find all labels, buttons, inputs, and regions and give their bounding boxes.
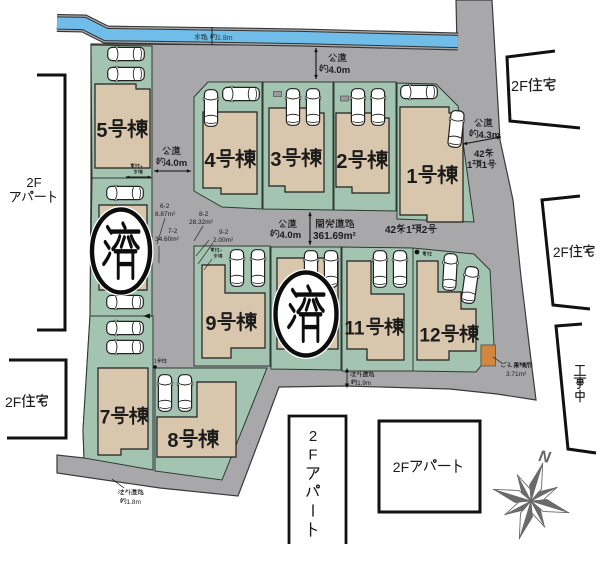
svg-text:4.0m: 4.0m — [280, 230, 302, 241]
svg-text:4.0m: 4.0m — [329, 65, 351, 76]
svg-text:5: 5 — [96, 120, 107, 142]
svg-text:1: 1 — [482, 160, 488, 171]
svg-text:2: 2 — [422, 225, 428, 236]
svg-text:1.8m: 1.8m — [127, 499, 141, 506]
svg-text:2F: 2F — [511, 79, 528, 95]
svg-text:6-2: 6-2 — [160, 203, 170, 210]
svg-text:1.8m: 1.8m — [217, 35, 233, 42]
svg-text:42: 42 — [385, 225, 397, 236]
svg-text:2: 2 — [336, 151, 347, 173]
svg-text:2.00m²: 2.00m² — [213, 237, 234, 244]
svg-text:2F: 2F — [5, 394, 21, 410]
svg-text:1.9m: 1.9m — [357, 380, 371, 387]
svg-text:4.0m: 4.0m — [166, 158, 188, 169]
svg-text:361.69m²: 361.69m² — [313, 231, 356, 242]
svg-text:1: 1 — [154, 359, 157, 365]
svg-text:1: 1 — [467, 160, 473, 171]
svg-text:9: 9 — [205, 313, 216, 335]
svg-text:3: 3 — [270, 149, 281, 171]
svg-text:+: + — [220, 249, 223, 254]
svg-text:28.32m²: 28.32m² — [189, 219, 214, 226]
svg-text:4: 4 — [204, 150, 216, 172]
svg-text:3.71m²: 3.71m² — [506, 371, 527, 378]
svg-text:34.60m²: 34.60m² — [155, 236, 180, 243]
svg-text:12: 12 — [419, 326, 440, 347]
svg-text:+: + — [140, 164, 143, 170]
svg-text:2F: 2F — [553, 245, 569, 260]
svg-text:9-2: 9-2 — [219, 229, 229, 236]
svg-text:42: 42 — [474, 149, 485, 160]
svg-text:1: 1 — [406, 166, 417, 188]
svg-text:2F: 2F — [26, 175, 41, 190]
svg-text:8: 8 — [167, 430, 178, 452]
svg-text:8.87m²: 8.87m² — [155, 211, 176, 218]
svg-text:F: F — [308, 447, 317, 464]
svg-text:2F: 2F — [393, 459, 409, 475]
svg-text:11: 11 — [344, 319, 365, 340]
svg-text:2: 2 — [309, 428, 317, 445]
svg-text:1: 1 — [406, 225, 412, 236]
svg-text:8-2: 8-2 — [199, 211, 209, 218]
svg-text:7-2: 7-2 — [168, 228, 178, 235]
svg-text:7: 7 — [100, 408, 111, 429]
